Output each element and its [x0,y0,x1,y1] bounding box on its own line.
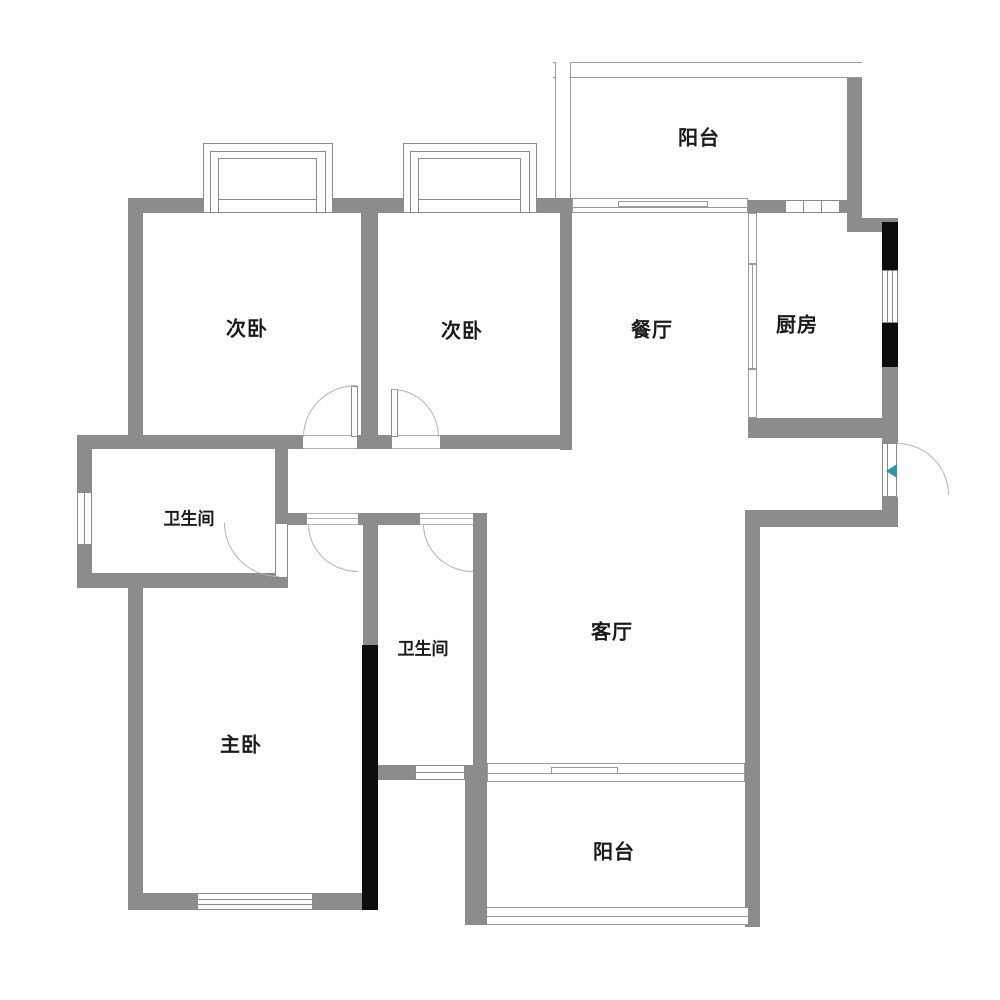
door-swing-arc-bedroom1 [303,385,357,437]
door-swing-arc-bathroom1 [224,523,279,577]
railing-balcony-top-left [555,62,571,198]
door-swing-arc-bathroom2 [423,524,473,572]
entry-direction-arrow-icon [886,464,897,478]
sliding-door-kitchen [748,213,757,418]
room-label-balcony-top: 阳台 [678,122,720,151]
bay-window-bedroom2-inner [418,158,521,213]
sliding-door-dining-balcony [572,198,748,213]
door-opening-bedroom1 [303,435,357,449]
room-label-bedroom2: 次卧 [441,315,483,344]
room-label-living: 客厅 [591,616,633,645]
floor-plan: 阳台 次卧 次卧 餐厅 厨房 卫生间 卫生间 主卧 客厅 阳台 [0,0,1000,1000]
wall-kitchen-right-lower [882,367,898,443]
wall-master-right-upper [363,525,378,645]
wall-living-right [745,510,760,927]
wall-bath1-bottom [77,573,288,588]
wall-hall-bottom-b [358,513,420,525]
bay-window-bedroom1-inner [218,158,317,213]
wall-balcony2-left [465,765,487,925]
wall-hall-top-left [77,435,303,449]
window-kitchen-right [882,270,898,323]
window-bathroom1-left [77,492,92,545]
wall-bedroom-divider [361,213,378,437]
wall-bedroom2-right [560,213,572,450]
shear-wall-master-right [362,645,378,910]
wall-entry-bottom [745,510,898,527]
room-label-bathroom2: 卫生间 [398,635,449,660]
railing-balcony-top [553,62,862,78]
wall-bath2-right [473,513,487,765]
column-kitchen-right-b [882,323,898,367]
wall-bedroom1-left [128,213,143,437]
room-label-dining: 餐厅 [631,314,673,343]
wall-hall-top-mid [357,435,392,449]
room-label-master-bedroom: 主卧 [220,729,262,758]
wall-master-left [128,588,143,910]
door-swing-arc-entrance [897,443,949,495]
wall-hall-bottom-a [288,513,307,525]
wall-bath1-right [275,449,288,523]
column-kitchen-right-a [882,222,898,270]
window-master-bottom [197,893,313,910]
wall-kitchen-bottom [748,418,898,438]
railing-balcony-bottom [487,907,748,925]
door-swing-arc-master [308,524,358,572]
room-label-balcony-bottom: 阳台 [593,836,635,865]
window-kitchen-top [785,200,840,213]
door-opening-bedroom2 [392,435,440,449]
window-bathroom2-bottom [415,765,465,780]
wall-entry-right-lower [882,497,898,517]
door-swing-arc-bedroom2 [392,389,439,437]
room-label-bathroom1: 卫生间 [164,505,215,530]
sliding-door-living-balcony [487,763,745,782]
room-label-kitchen: 厨房 [776,309,818,338]
wall-hall-top-right [440,435,567,449]
room-label-bedroom1: 次卧 [226,313,268,342]
